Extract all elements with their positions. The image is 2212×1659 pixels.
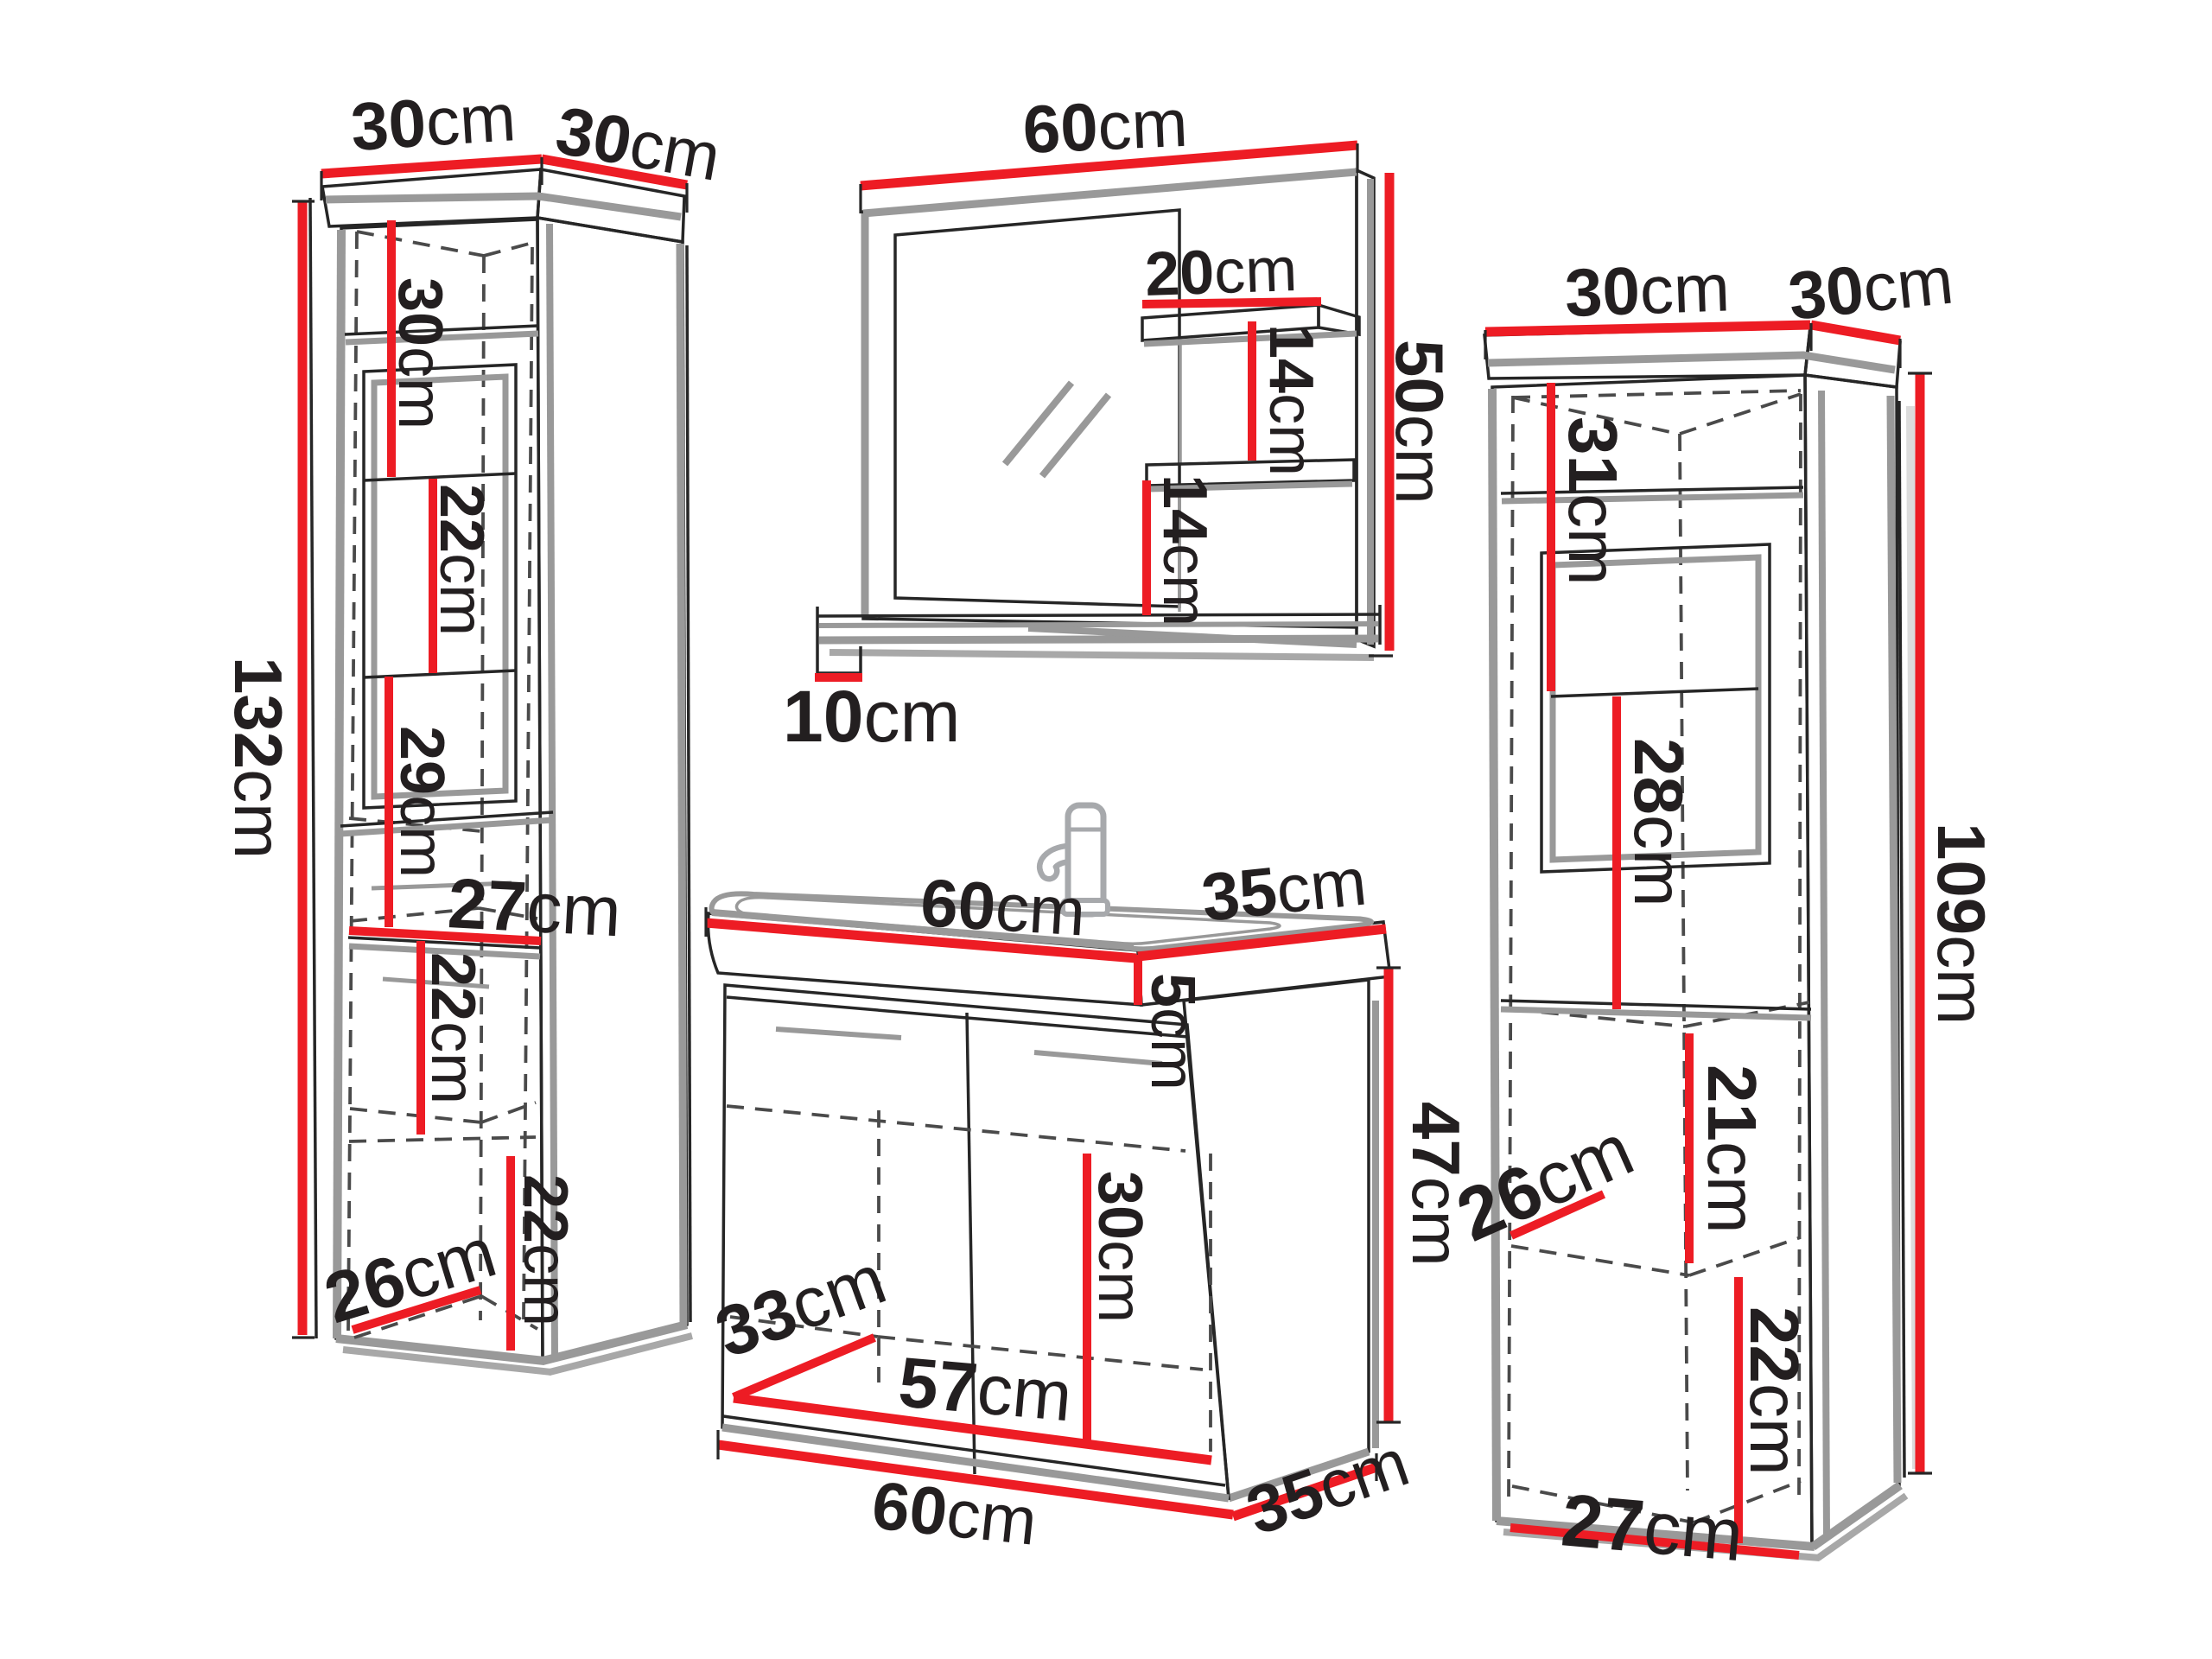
svg-text:22cm: 22cm <box>1736 1306 1813 1476</box>
svg-text:27cm: 27cm <box>1558 1478 1746 1577</box>
svg-text:10cm: 10cm <box>783 676 960 757</box>
svg-text:30cm: 30cm <box>1085 1171 1154 1323</box>
svg-text:5cm: 5cm <box>1138 973 1207 1090</box>
svg-text:132cm: 132cm <box>220 657 296 859</box>
svg-text:60cm: 60cm <box>918 864 1088 950</box>
svg-text:14cm: 14cm <box>1256 324 1325 476</box>
svg-text:22cm: 22cm <box>511 1174 580 1326</box>
svg-text:57cm: 57cm <box>895 1343 1075 1436</box>
svg-text:21cm: 21cm <box>1694 1065 1770 1234</box>
svg-text:31cm: 31cm <box>1554 416 1631 586</box>
svg-text:20cm: 20cm <box>1144 235 1299 309</box>
svg-text:50cm: 50cm <box>1382 340 1458 505</box>
svg-text:109cm: 109cm <box>1923 823 1999 1025</box>
svg-text:22cm: 22cm <box>427 484 496 636</box>
svg-text:27cm: 27cm <box>446 864 623 951</box>
svg-text:60cm: 60cm <box>1021 85 1189 168</box>
svg-text:30cm: 30cm <box>1564 249 1732 331</box>
svg-text:30cm: 30cm <box>349 79 518 165</box>
svg-text:22cm: 22cm <box>418 952 487 1104</box>
svg-text:28cm: 28cm <box>1620 738 1697 907</box>
svg-text:30cm: 30cm <box>385 277 454 429</box>
svg-text:29cm: 29cm <box>387 726 456 878</box>
svg-text:14cm: 14cm <box>1150 474 1219 626</box>
